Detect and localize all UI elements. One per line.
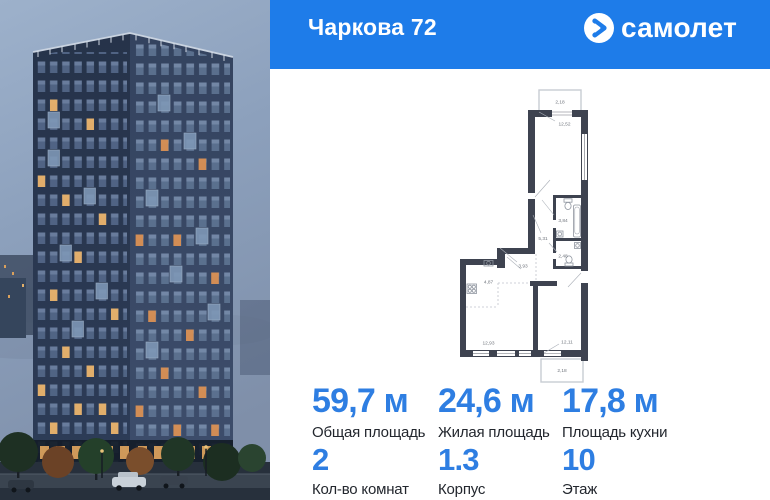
samolet-logo-icon: [584, 13, 614, 43]
building-photo: [0, 0, 270, 500]
room-label: 2,48: [558, 254, 568, 260]
floor-plan: 2,18 12,52 3,84 5,31 2,48 3,93 4,87 12,9…: [440, 76, 640, 388]
room-label: 4,87: [484, 280, 494, 286]
stat-rooms: 2 Кол-во комнат: [312, 444, 438, 498]
fixtures: [467, 199, 581, 294]
stat-label: Кол-во комнат: [312, 481, 438, 498]
stat-value: 24,6 м: [438, 384, 562, 420]
room-label: 3,84: [558, 218, 568, 224]
leader-lines: [500, 112, 581, 353]
stat-value: 2: [312, 444, 438, 477]
stat-kitchen-area: 17,8 м Площадь кухни: [562, 384, 667, 441]
floor-plan-drawing: 2,18 12,52 3,84 5,31 2,48 3,93 4,87 12,9…: [440, 76, 640, 388]
listing-card: Чаркова 72 самолет: [0, 0, 770, 500]
detail-stats: 2 Кол-во комнат 1.3 Корпус 10 Этаж: [312, 444, 597, 498]
stat-value: 10: [562, 444, 597, 477]
room-label: 12,11: [561, 340, 573, 346]
walls: [460, 110, 588, 361]
page-title: Чаркова 72: [308, 14, 437, 41]
brand-logo[interactable]: самолет: [584, 12, 737, 44]
stat-total-area: 59,7 м Общая площадь: [312, 384, 438, 441]
stat-living-area: 24,6 м Жилая площадь: [438, 384, 562, 441]
room-label: 12,93: [482, 341, 494, 347]
room-label: 12,52: [558, 122, 570, 128]
stat-value: 59,7 м: [312, 384, 438, 420]
room-label: 5,31: [538, 236, 548, 242]
stat-label: Общая площадь: [312, 424, 438, 441]
header: Чаркова 72 самолет: [270, 0, 770, 69]
stat-label: Корпус: [438, 481, 562, 498]
stat-building: 1.3 Корпус: [438, 444, 562, 498]
details-panel: Чаркова 72 самолет: [270, 0, 770, 500]
stat-floor: 10 Этаж: [562, 444, 597, 498]
brand-name: самолет: [621, 12, 737, 44]
room-label: 2,18: [555, 100, 565, 106]
stat-label: Жилая площадь: [438, 424, 562, 441]
area-stats: 59,7 м Общая площадь 24,6 м Жилая площад…: [312, 384, 667, 441]
stat-value: 1.3: [438, 444, 562, 477]
stat-label: Этаж: [562, 481, 597, 498]
stat-value: 17,8 м: [562, 384, 667, 420]
room-label: 3,93: [518, 264, 528, 270]
building-illustration: [0, 0, 270, 500]
stat-label: Площадь кухни: [562, 424, 667, 441]
room-label: 2,18: [557, 368, 567, 374]
